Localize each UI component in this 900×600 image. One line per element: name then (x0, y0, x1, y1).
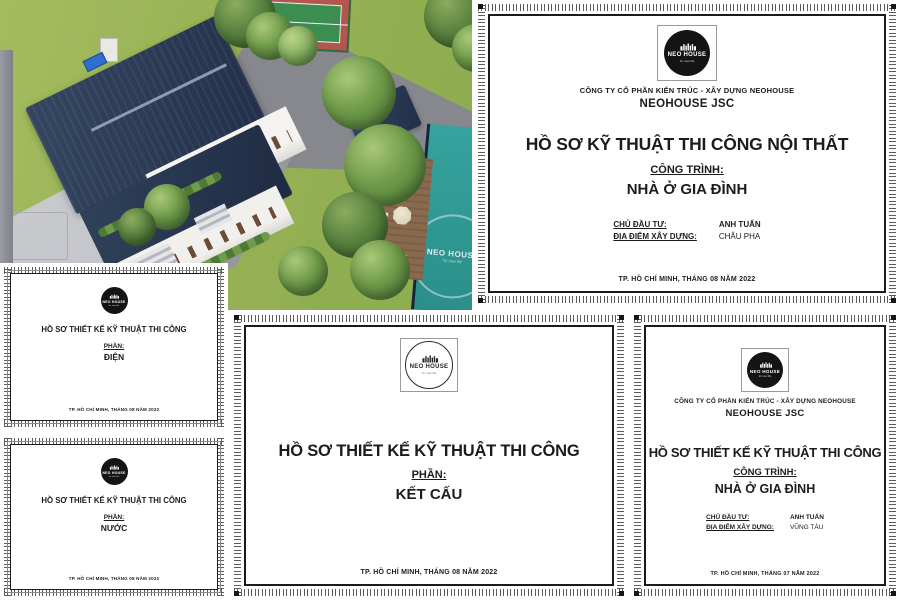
logo-name: NEO HOUSE (668, 52, 707, 58)
concrete-panel-line (8, 212, 68, 260)
doc-title: HỒ SƠ THIẾT KẾ KỸ THUẬT THI CÔNG (245, 442, 613, 461)
border-corner (891, 315, 896, 320)
section-name: ĐIỆN (12, 352, 216, 362)
border-corner (478, 298, 483, 303)
neohouse-building-icon (109, 465, 119, 470)
tree (350, 240, 410, 300)
watermark-tagline: for new life (443, 258, 463, 265)
doc-cover-gia-dinh: NEO HOUSE for new life CÔNG TY CỔ PHẦN K… (630, 311, 900, 600)
doc-footer: TP. HỒ CHÍ MINH, THÁNG 07 NĂM 2022 (645, 571, 885, 577)
neohouse-logo: NEO HOUSE for new life (657, 25, 717, 81)
location-name: VŨNG TÀU (790, 524, 824, 531)
neohouse-logo: NEO HOUSE for new life (400, 338, 458, 392)
border-corner (619, 315, 624, 320)
owner-name: ANH TUẤN (719, 220, 761, 229)
logo-tagline: for new life (109, 476, 120, 478)
border-corner (234, 315, 239, 320)
location-label: ĐỊA ĐIỂM XÂY DỰNG: (706, 524, 774, 531)
company-name: NEOHOUSE JSC (645, 408, 885, 419)
location-name: CHÂU PHA (719, 232, 761, 241)
collage-canvas: NEO HOUSE for new life (0, 0, 900, 600)
section-label: PHẦN: (245, 469, 613, 481)
logo-name: NEO HOUSE (410, 364, 449, 370)
logo-name: NEO HOUSE (102, 300, 125, 304)
neohouse-logo: NEO HOUSE for new life (101, 458, 128, 485)
doc-footer: TP. HỒ CHÍ MINH, THÁNG 08 NĂM 2022 (12, 576, 216, 581)
doc-cover-dien: NEO HOUSE for new life HỒ SƠ THIẾT KẾ KỸ… (0, 263, 228, 431)
neohouse-building-icon (421, 355, 438, 363)
border-corner (891, 591, 896, 596)
section-name: NƯỚC (12, 523, 216, 533)
tree (278, 246, 328, 296)
project-label: CÔNG TRÌNH: (645, 467, 885, 478)
location-label: ĐỊA ĐIỂM XÂY DỰNG: (613, 232, 697, 241)
neohouse-building-icon (759, 362, 772, 368)
owner-block: CHỦ ĐẦU TƯ: ANH TUẤN ĐỊA ĐIỂM XÂY DỰNG: … (706, 514, 824, 531)
border-corner (478, 4, 483, 9)
company-line: CÔNG TY CỔ PHẦN KIẾN TRÚC - XÂY DỰNG NEO… (645, 398, 885, 405)
doc-cover-ket-cau: NEO HOUSE for new life HỒ SƠ THIẾT KẾ KỸ… (230, 311, 628, 600)
section-label: PHẦN: (12, 514, 216, 521)
border-corner (234, 591, 239, 596)
project-name: NHÀ Ở GIA ĐÌNH (645, 482, 885, 496)
doc-footer: TP. HỒ CHÍ MINH, THÁNG 08 NĂM 2022 (12, 407, 216, 412)
owner-label: CHỦ ĐẦU TƯ: (706, 514, 774, 521)
logo-tagline: for new life (109, 305, 120, 307)
doc-title: HỒ SƠ THIẾT KẾ KỸ THUẬT THI CÔNG (12, 325, 216, 334)
company-line: CÔNG TY CỔ PHẦN KIẾN TRÚC - XÂY DỰNG NEO… (489, 86, 885, 95)
logo-name: NEO HOUSE (102, 471, 125, 475)
border-corner (619, 591, 624, 596)
logo-tagline: for new life (422, 371, 437, 375)
section-label: PHẦN: (12, 343, 216, 350)
tree (118, 208, 156, 246)
tree (322, 56, 396, 130)
neohouse-logo: NEO HOUSE for new life (741, 348, 789, 392)
company-name: NEOHOUSE JSC (489, 98, 885, 110)
project-name: NHÀ Ở GIA ĐÌNH (489, 181, 885, 198)
doc-footer: TP. HỒ CHÍ MINH, THÁNG 08 NĂM 2022 (245, 569, 613, 576)
logo-name: NEO HOUSE (750, 369, 780, 374)
doc-cover-nuoc: NEO HOUSE for new life HỒ SƠ THIẾT KẾ KỸ… (0, 434, 228, 600)
doc-title: HỒ SƠ THIẾT KẾ KỸ THUẬT THI CÔNG (12, 496, 216, 505)
logo-tagline: for new life (680, 59, 695, 63)
neohouse-building-icon (679, 43, 696, 51)
tree (278, 26, 318, 66)
owner-label: CHỦ ĐẦU TƯ: (613, 220, 697, 229)
parasol (392, 206, 412, 226)
owner-name: ANH TUẤN (790, 514, 824, 521)
neohouse-logo: NEO HOUSE for new life (101, 287, 128, 314)
border-corner (634, 591, 639, 596)
boundary-wall (0, 50, 13, 272)
border-corner (634, 315, 639, 320)
border-corner (891, 4, 896, 9)
border-corner (891, 298, 896, 303)
logo-tagline: for new life (759, 375, 772, 378)
doc-cover-noi-that: NEO HOUSE for new life CÔNG TY CỔ PHẦN K… (474, 0, 900, 307)
neohouse-building-icon (109, 294, 119, 299)
doc-title: HỒ SƠ THIẾT KẾ KỸ THUẬT THI CÔNG (645, 445, 885, 460)
project-label: CÔNG TRÌNH: (489, 164, 885, 176)
owner-block: CHỦ ĐẦU TƯ: ANH TUẤN ĐỊA ĐIỂM XÂY DỰNG: … (613, 220, 760, 241)
doc-title: HỒ SƠ KỸ THUẬT THI CÔNG NỘI THẤT (489, 134, 885, 155)
doc-footer: TP. HỒ CHÍ MINH, THÁNG 08 NĂM 2022 (489, 276, 885, 283)
section-name: KẾT CẤU (245, 486, 613, 503)
